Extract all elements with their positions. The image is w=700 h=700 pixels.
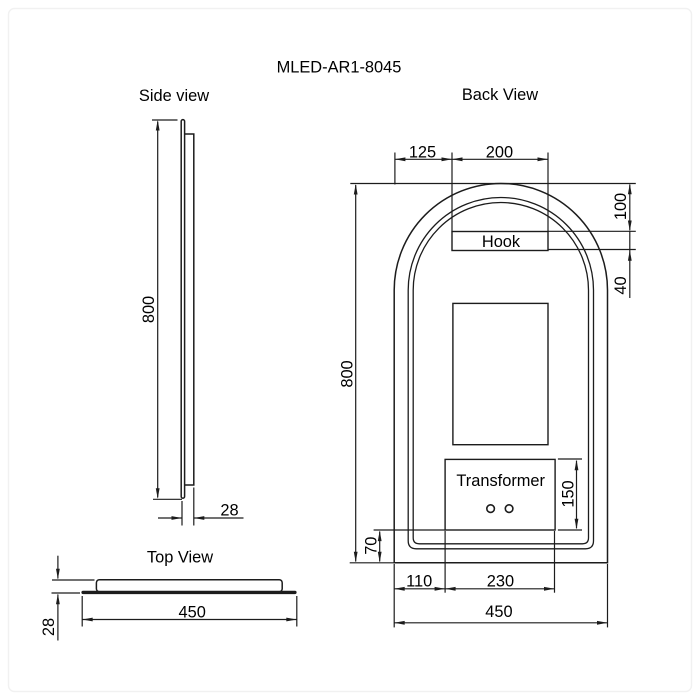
- svg-text:Top View: Top View: [147, 549, 213, 567]
- svg-text:800: 800: [140, 296, 158, 323]
- svg-text:450: 450: [485, 603, 512, 621]
- svg-text:450: 450: [179, 604, 206, 622]
- svg-text:28: 28: [40, 618, 58, 636]
- svg-text:230: 230: [487, 573, 514, 591]
- svg-text:125: 125: [409, 143, 436, 161]
- svg-text:Hook: Hook: [482, 233, 521, 251]
- svg-text:MLED-AR1-8045: MLED-AR1-8045: [277, 59, 402, 77]
- svg-text:Side view: Side view: [139, 87, 209, 105]
- svg-text:100: 100: [612, 193, 630, 220]
- svg-text:110: 110: [406, 573, 432, 591]
- svg-text:Back View: Back View: [462, 86, 538, 104]
- svg-text:150: 150: [559, 480, 577, 507]
- svg-text:Transformer: Transformer: [456, 472, 545, 490]
- svg-text:28: 28: [220, 502, 238, 520]
- svg-text:70: 70: [363, 537, 381, 555]
- svg-text:800: 800: [338, 360, 356, 387]
- svg-text:200: 200: [486, 143, 513, 161]
- svg-text:40: 40: [612, 276, 630, 294]
